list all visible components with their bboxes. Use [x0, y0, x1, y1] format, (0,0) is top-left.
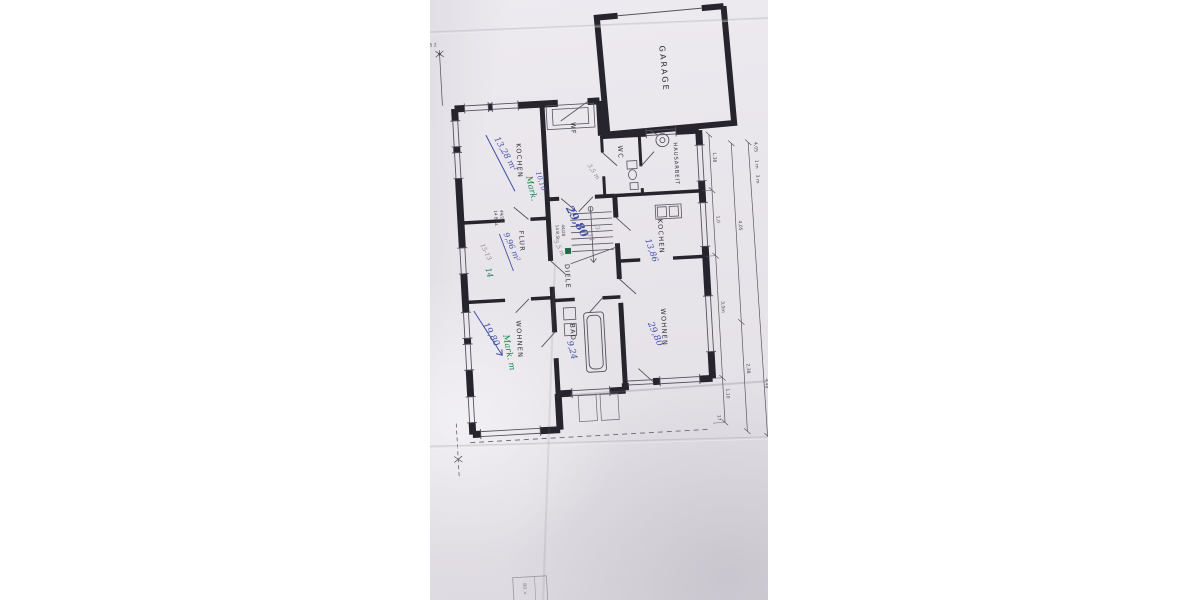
dim-value: 1,10: [724, 388, 731, 399]
window: [698, 202, 710, 246]
window: [450, 121, 461, 147]
bathtub: [583, 312, 606, 373]
window: [572, 386, 610, 398]
dim-value: 4,05: [737, 220, 744, 231]
window: [452, 152, 463, 178]
diele-pencil-note-4: 14: [586, 232, 595, 242]
diele-label: DIELE: [563, 264, 572, 290]
window: [703, 296, 716, 352]
toilet: [627, 161, 639, 190]
wohnen-left-strike-arrow: [474, 310, 502, 357]
window: [463, 344, 474, 370]
dim-value: 4,05: [752, 142, 759, 153]
dim-value: 1 m: [753, 160, 760, 170]
window: [461, 312, 472, 338]
stair-spec: 44/28: [561, 224, 567, 237]
survey-marker-corner: [452, 423, 463, 477]
dim-value: 1,0: [714, 216, 720, 224]
floorplan-drawing: GARAGE: [430, 0, 768, 600]
diele-pencil-note-1: 3,5 m: [552, 239, 566, 258]
bad-label: BAD: [568, 323, 577, 341]
dim-value: 3,0m: [719, 301, 726, 314]
survey-marker-text: 2,5 2: [430, 42, 437, 49]
kitchen-sink-unit: [655, 204, 682, 219]
window: [466, 397, 477, 423]
diele-pencil-note-2: 3,5 m: [585, 163, 601, 182]
dim-value: 1,38: [711, 152, 718, 163]
window: [464, 102, 488, 113]
screenshot-root: GARAGE: [0, 0, 1200, 600]
room-garage: GARAGE: [597, 6, 734, 134]
window: [695, 145, 707, 181]
dim-value: 3 m: [754, 175, 761, 185]
window: [492, 100, 518, 111]
window: [457, 248, 468, 274]
fragment-text: 80 ×: [521, 583, 528, 595]
bad-area-note: 9,24: [565, 340, 580, 361]
hausarbeit-label: HAUSARBEIT: [672, 142, 680, 185]
stair-spec: 44/28: [499, 210, 505, 223]
garage-label: GARAGE: [657, 45, 670, 92]
stair-spec: 14 B.St.: [493, 210, 499, 227]
terrace-door: [626, 368, 653, 385]
wohnen-left-label: WOHNEN: [514, 320, 524, 358]
dim-value: 17: [716, 415, 722, 421]
flur-pencil-note: 15-13: [478, 243, 492, 262]
window: [660, 374, 700, 386]
terrace-steps: [578, 394, 619, 422]
wc-label: WC: [616, 145, 625, 159]
dim-value: 4,48: [763, 378, 768, 388]
window: [480, 426, 540, 439]
floorplan-photo: GARAGE: [430, 0, 768, 600]
roof-dashed-line: [469, 429, 707, 442]
wf-label: WF: [569, 122, 578, 135]
survey-marker-topleft: [435, 50, 446, 106]
flur-green-note: 14: [483, 267, 494, 279]
sheet-fragment: 80 ×: [513, 576, 549, 600]
dim-value: 2,38: [745, 363, 752, 374]
